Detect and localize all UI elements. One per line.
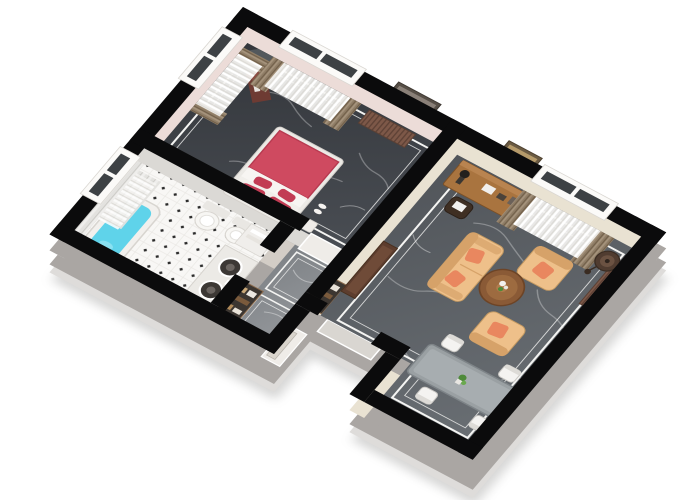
floor-plan-3d-render bbox=[0, 0, 700, 500]
floor-plan-stage bbox=[0, 0, 700, 500]
